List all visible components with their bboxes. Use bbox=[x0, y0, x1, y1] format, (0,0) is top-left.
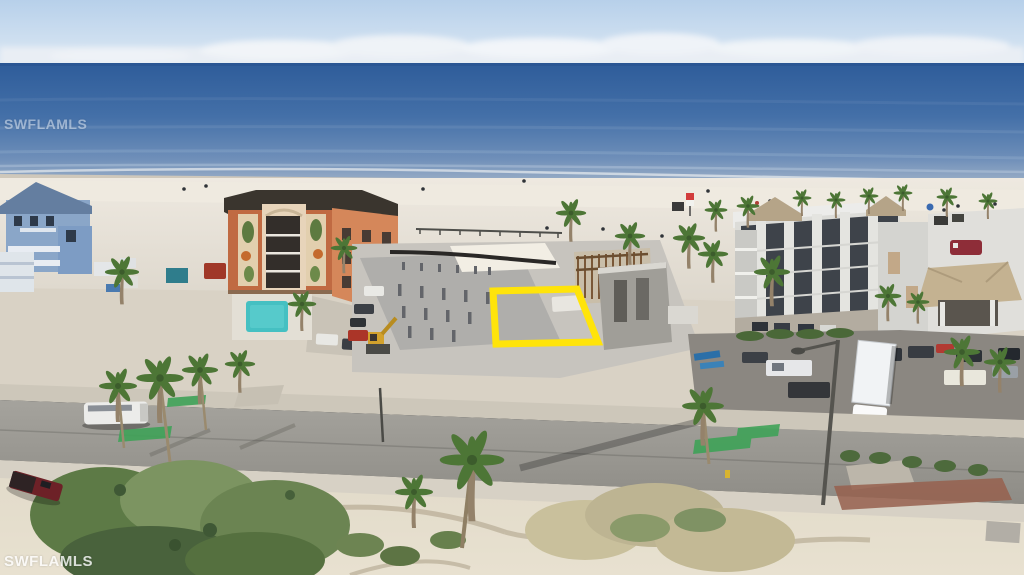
construction-site bbox=[348, 240, 700, 378]
aerial-photo: SWFLAMLS SWFLAMLS bbox=[0, 0, 1024, 575]
red-truck bbox=[204, 263, 226, 279]
scene bbox=[0, 0, 1024, 575]
utility-pad bbox=[985, 521, 1020, 543]
left-driveway bbox=[234, 385, 284, 407]
ocean bbox=[0, 63, 1024, 183]
teal-dumpster bbox=[166, 268, 188, 283]
fire-hydrant bbox=[725, 470, 730, 478]
concrete-block-building bbox=[598, 262, 672, 350]
beach-umbrella bbox=[927, 204, 934, 211]
